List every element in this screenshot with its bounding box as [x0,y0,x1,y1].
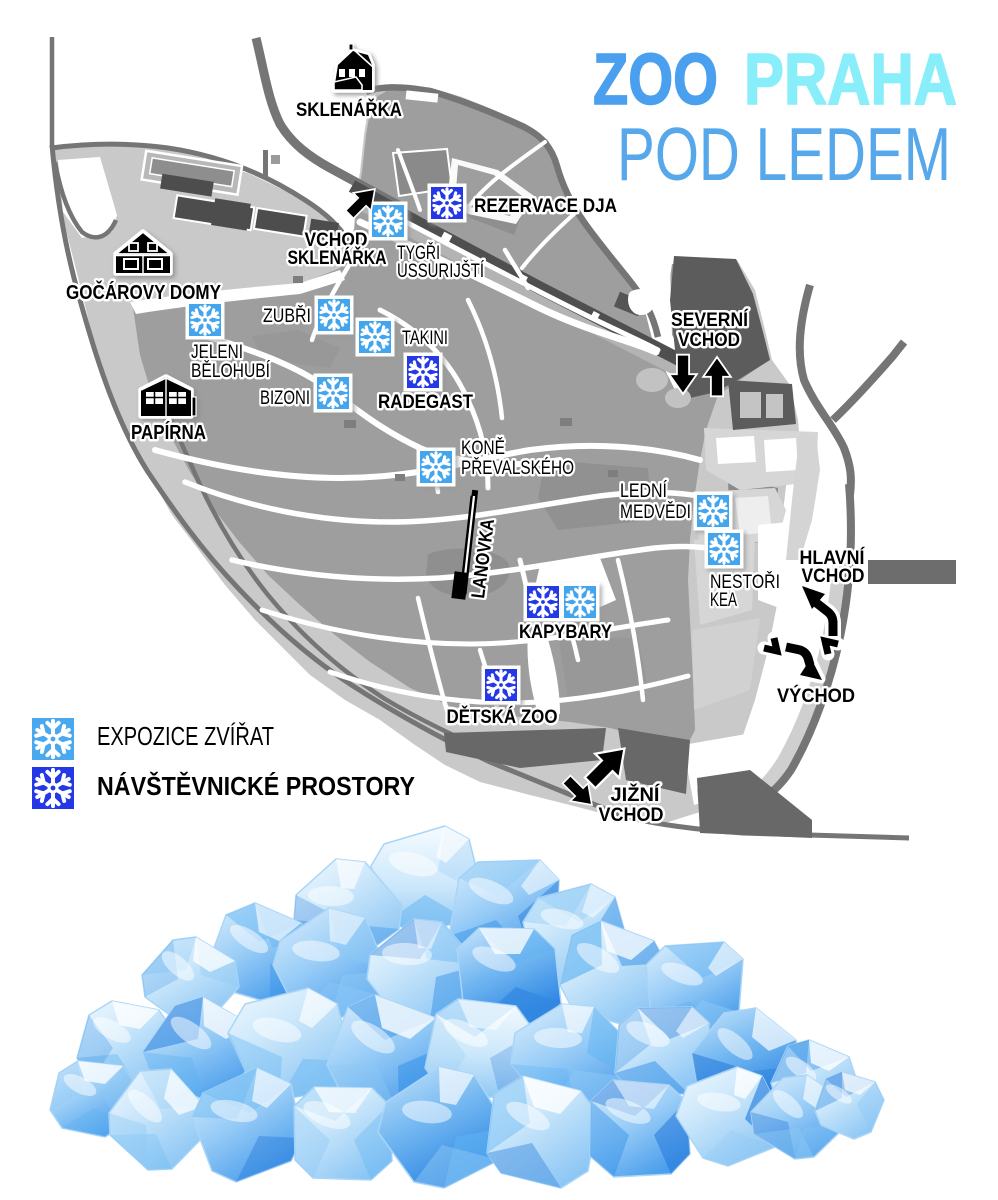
svg-text:NÁVŠTĚVNICKÉ PROSTORY: NÁVŠTĚVNICKÉ PROSTORY [97,771,415,801]
svg-text:ZUBŘI: ZUBŘI [263,305,311,327]
svg-text:RADEGAST: RADEGAST [378,392,473,413]
svg-text:VCHOD: VCHOD [802,566,865,587]
svg-text:VCHOD: VCHOD [599,805,664,826]
svg-text:MEDVĚDI: MEDVĚDI [620,501,691,523]
svg-text:JIŽNÍ: JIŽNÍ [611,784,661,806]
svg-text:KAPYBARY: KAPYBARY [519,622,612,643]
svg-text:KONĚ: KONĚ [461,437,505,459]
svg-text:EXPOZICE ZVÍŘAT: EXPOZICE ZVÍŘAT [97,721,274,751]
svg-text:REZERVACE DJA: REZERVACE DJA [474,196,617,217]
svg-text:JELENI: JELENI [191,342,243,363]
svg-text:VCHOD: VCHOD [678,330,740,351]
svg-text:BIZONI: BIZONI [260,388,310,409]
svg-text:SKLENÁŘKA: SKLENÁŘKA [296,97,402,121]
svg-text:KEA: KEA [710,590,737,611]
svg-text:BĚLOHUBÍ: BĚLOHUBÍ [191,360,271,382]
svg-text:SKLENÁŘKA: SKLENÁŘKA [288,247,387,269]
svg-text:TAKINI: TAKINI [402,328,448,349]
svg-text:POD LEDEM: POD LEDEM [617,112,951,196]
svg-text:DĚTSKÁ ZOO: DĚTSKÁ ZOO [447,706,558,728]
svg-text:PŘEVALSKÉHO: PŘEVALSKÉHO [461,457,574,479]
svg-text:USSURIJŠTÍ: USSURIJŠTÍ [397,260,485,282]
svg-text:LEDNÍ: LEDNÍ [620,481,668,502]
svg-text:VÝCHOD: VÝCHOD [777,685,855,707]
svg-text:PRAHA: PRAHA [744,40,957,120]
svg-text:SEVERNÍ: SEVERNÍ [671,309,749,331]
svg-text:ZOO: ZOO [593,40,718,120]
svg-text:GOČÁROVY DOMY: GOČÁROVY DOMY [66,280,222,304]
svg-text:PAPÍRNA: PAPÍRNA [131,421,206,444]
